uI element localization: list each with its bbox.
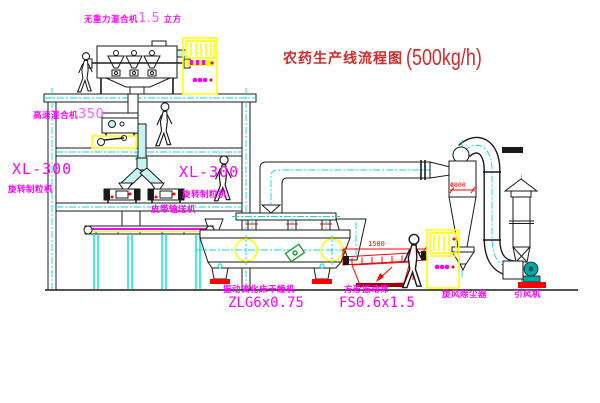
belt-conveyor-label: 皮带输送机 [151, 206, 196, 215]
granulator-right-model: XL-300 [179, 165, 239, 180]
sieve-model-label: FS0.6x1.5 [339, 296, 415, 310]
granulator-left [104, 183, 140, 203]
granulator-left-model: XL-300 [12, 162, 72, 177]
person-figure-2 [156, 103, 172, 146]
fan-label: 引风机 [514, 291, 541, 300]
high-speed-mixer-label: 高速混合机350 [33, 108, 104, 121]
dryer-model-label: ZLG6x0.75 [228, 296, 304, 310]
gravity-mixer-size: 1.5 [138, 11, 160, 26]
gravity-mixer-unit: 立方 [164, 15, 182, 25]
granulator-right-name: 旋转制粒机 [182, 191, 227, 200]
dryer-name-label: 振动流化床干燥机 [223, 286, 295, 295]
diagram-capacity: (500kg/h) [406, 44, 482, 71]
cyclone-diameter-dimension: Φ800 [450, 182, 466, 189]
fluid-bed-dryer [196, 230, 350, 284]
sieve-name-label: 方形振动筛 [344, 286, 389, 295]
granulator-left-name: 旋转制粒机 [8, 186, 53, 195]
control-cabinet-1 [183, 38, 217, 94]
process-flow-drawing-canvas: 农药生产线流程图 (500kg/h) 无重力混合机1.5 立方 高速混合机350… [0, 0, 600, 403]
control-cabinet-2 [427, 230, 459, 288]
high-speed-mixer-size: 350 [78, 107, 104, 122]
diagram-title-text: 农药生产线流程图 [283, 48, 403, 68]
cyclone-separator [430, 140, 476, 278]
diagram-title: 农药生产线流程图 (500kg/h) [283, 44, 503, 71]
gravity-mixer-name: 无重力混合机 [84, 15, 138, 25]
high-speed-mixer-name: 高速混合机 [33, 111, 78, 121]
granulator-right [148, 183, 184, 203]
cyclone-label: 旋风除尘器 [442, 291, 487, 300]
sieve-width-dimension: 1500 [368, 241, 385, 248]
induced-draft-fan-unit [503, 261, 546, 288]
gravity-mixer-label: 无重力混合机1.5 立方 [84, 12, 182, 25]
